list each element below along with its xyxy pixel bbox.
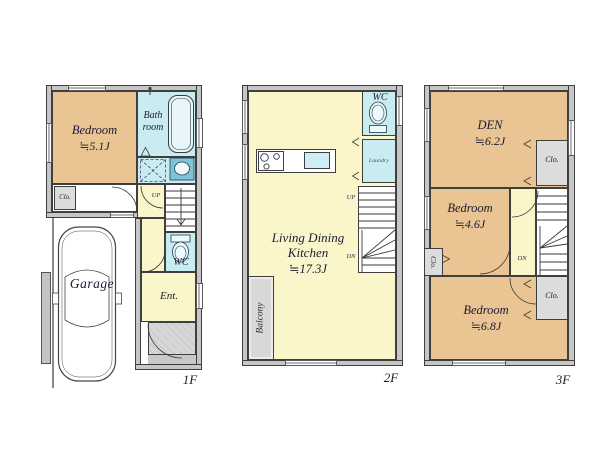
- window: [242, 144, 248, 180]
- stove-icon: [258, 151, 284, 171]
- room-washroom-1f: [137, 157, 196, 184]
- dn-label-3f: DN: [513, 255, 531, 262]
- garage-label: Garage: [60, 276, 124, 292]
- closet-3f-top-label: Clo.: [536, 155, 568, 164]
- up-label-1f: UP: [146, 192, 166, 199]
- balcony-label: Balcony: [248, 276, 274, 360]
- side-fence: [41, 272, 51, 364]
- closet-3f-left-label: Clo.: [424, 248, 443, 276]
- window: [396, 96, 403, 126]
- wall-segment: [396, 85, 403, 366]
- hall-3f: [510, 188, 536, 276]
- floor-label-2f: 2F: [378, 370, 404, 386]
- window: [452, 360, 506, 366]
- window: [110, 212, 134, 218]
- wc-2f-label: WC: [366, 92, 394, 103]
- bedroom-1f-label: Bedroom ≒5.1J: [52, 123, 137, 153]
- closet-1f-label: Clo.: [54, 193, 76, 201]
- stairs-area-3f[interactable]: [536, 188, 568, 276]
- entrance-label: Ent.: [150, 290, 188, 302]
- bathroom-label: Bath room: [137, 110, 169, 134]
- window: [196, 283, 203, 309]
- wall-segment: [135, 364, 202, 370]
- garage-area: [52, 218, 135, 388]
- porch-step: [148, 354, 196, 364]
- wc-1f-label: WC: [167, 257, 195, 268]
- sink-icon: [304, 152, 330, 169]
- laundry-label: Laundry: [362, 158, 396, 164]
- hall-1f-lower: [141, 218, 165, 272]
- window: [68, 85, 106, 91]
- window: [196, 118, 203, 148]
- hall-1f-upper: [137, 184, 165, 218]
- window: [242, 100, 248, 134]
- ldk-label: Living Dining Kitchen ≒17.3J: [248, 230, 368, 276]
- bedroom1-3f-label: Bedroom ≒4.6J: [430, 201, 510, 231]
- floor-label-3f: 3F: [550, 372, 576, 388]
- up-label-2f: UP: [341, 194, 361, 201]
- bedroom2-3f-label: Bedroom ≒6.8J: [430, 303, 542, 333]
- closet-3f-bottom-label: Clo.: [536, 291, 568, 300]
- window: [448, 85, 504, 91]
- den-label: DEN ≒6.2J: [430, 118, 550, 148]
- floor-label-1f: 1F: [177, 372, 203, 388]
- window: [568, 120, 575, 156]
- floorplan-canvas: Bedroom ≒5.1J Bath room Clo. UP WC Ent. …: [0, 0, 600, 449]
- stairs-area-1f[interactable]: [165, 184, 196, 232]
- window: [285, 360, 337, 366]
